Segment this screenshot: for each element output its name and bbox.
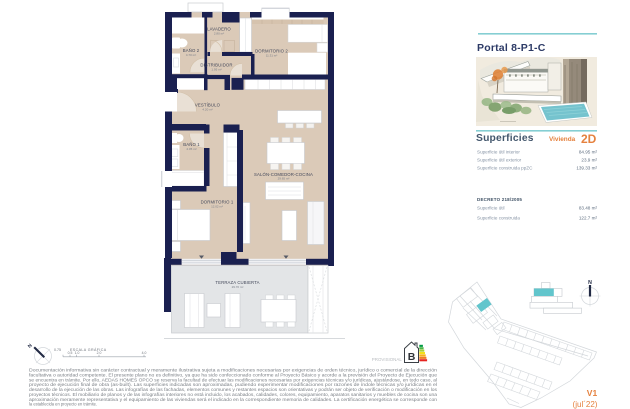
- svg-text:1.95 m²: 1.95 m²: [211, 68, 221, 72]
- svg-text:0.75: 0.75: [54, 348, 61, 352]
- svg-text:DECRETO 218/2005: DECRETO 218/2005: [477, 197, 522, 202]
- svg-text:0.5: 0.5: [68, 351, 73, 355]
- svg-text:139.33 m²: 139.33 m²: [576, 166, 597, 171]
- svg-text:Superficie construida ppZC: Superficie construida ppZC: [477, 166, 533, 171]
- svg-text:4.05 m²: 4.05 m²: [186, 147, 196, 151]
- svg-text:4.0: 4.0: [142, 351, 147, 355]
- svg-text:N: N: [588, 280, 592, 286]
- svg-text:Superficie construida: Superficie construida: [477, 216, 520, 221]
- svg-text:83.48 m²: 83.48 m²: [579, 206, 598, 211]
- svg-text:(jul´22): (jul´22): [573, 400, 598, 409]
- svg-text:29.70 m²: 29.70 m²: [232, 285, 244, 289]
- svg-text:12.02 m²: 12.02 m²: [211, 205, 223, 209]
- svg-text:1.0: 1.0: [75, 351, 80, 355]
- svg-text:23.9 m²: 23.9 m²: [581, 158, 597, 163]
- svg-text:B: B: [408, 351, 416, 363]
- svg-text:la establecida en proyecto en: la establecida en proyecto en trámite.: [29, 402, 97, 407]
- svg-text:4.70 m²: 4.70 m²: [186, 53, 196, 57]
- svg-text:Superficie útil exterior: Superficie útil exterior: [477, 158, 522, 163]
- svg-text:Portal 8-P1-C: Portal 8-P1-C: [477, 42, 546, 54]
- svg-text:84.95 m²: 84.95 m²: [579, 150, 598, 155]
- svg-text:11.31 m²: 11.31 m²: [266, 54, 278, 58]
- svg-text:2.80 m²: 2.80 m²: [214, 32, 224, 36]
- svg-text:Superficie útil interior: Superficie útil interior: [477, 150, 520, 155]
- svg-text:Superficie útil: Superficie útil: [477, 206, 505, 211]
- svg-text:V1: V1: [587, 388, 598, 398]
- svg-text:4.20 m²: 4.20 m²: [202, 108, 212, 112]
- svg-text:Vivienda: Vivienda: [549, 136, 576, 143]
- svg-text:2D: 2D: [581, 132, 597, 146]
- svg-text:2.0: 2.0: [97, 351, 102, 355]
- svg-text:29.65 m²: 29.65 m²: [278, 177, 290, 181]
- svg-text:Superficies: Superficies: [476, 133, 534, 144]
- svg-text:PROVISIONAL: PROVISIONAL: [372, 357, 402, 363]
- svg-text:122.7 m²: 122.7 m²: [579, 216, 598, 221]
